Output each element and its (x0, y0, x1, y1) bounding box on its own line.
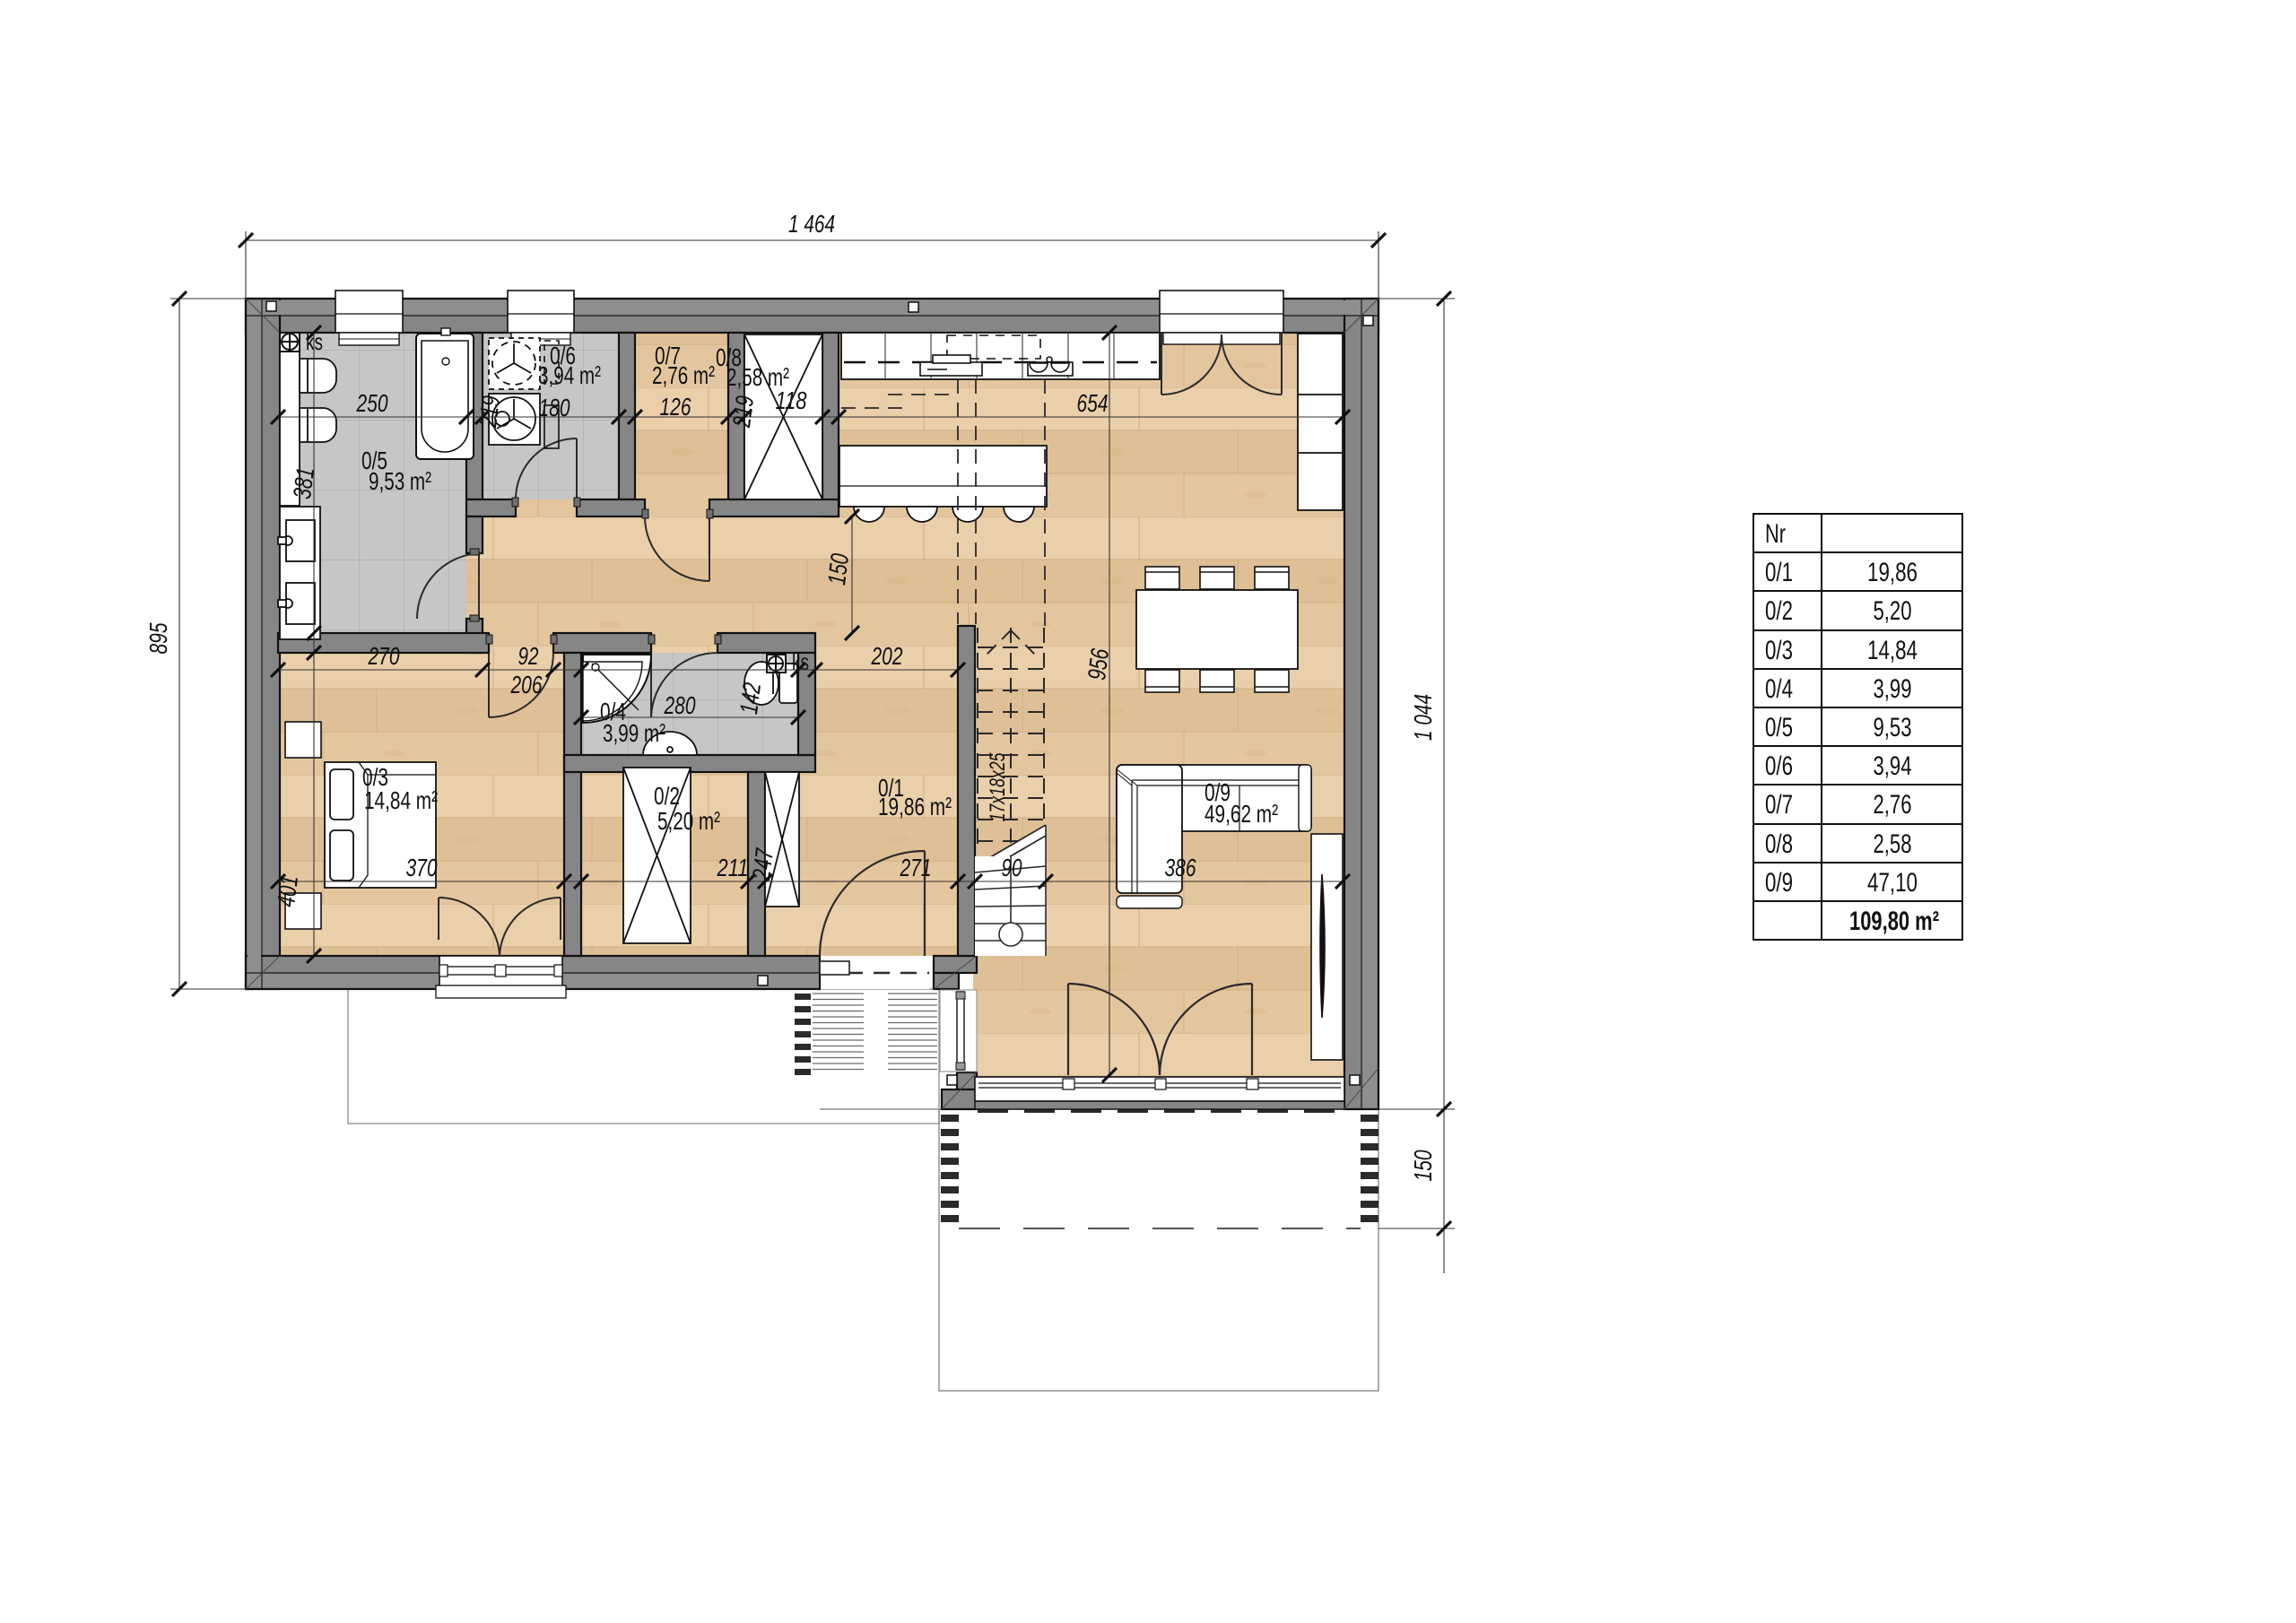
svg-text:180: 180 (539, 394, 570, 421)
svg-text:2,76 m²: 2,76 m² (652, 361, 715, 389)
svg-text:202: 202 (871, 642, 903, 670)
svg-text:386: 386 (1165, 854, 1196, 881)
svg-text:1 464: 1 464 (788, 210, 835, 238)
svg-text:956: 956 (1083, 647, 1114, 681)
svg-text:654: 654 (1077, 389, 1109, 417)
svg-text:370: 370 (406, 854, 438, 881)
svg-text:1 044: 1 044 (1409, 694, 1437, 741)
svg-text:3,94: 3,94 (1874, 751, 1912, 781)
svg-text:126: 126 (660, 393, 691, 421)
svg-text:271: 271 (900, 854, 932, 881)
svg-text:250: 250 (356, 389, 388, 417)
svg-text:211: 211 (717, 854, 749, 881)
svg-text:19,86: 19,86 (1867, 558, 1918, 587)
svg-text:17x18x25: 17x18x25 (986, 752, 1010, 821)
svg-text:401: 401 (272, 874, 303, 909)
svg-text:270: 270 (368, 642, 400, 670)
svg-text:142: 142 (735, 681, 766, 716)
svg-text:0/3: 0/3 (1765, 636, 1793, 665)
svg-text:206: 206 (510, 671, 543, 699)
svg-text:5,20 m²: 5,20 m² (657, 807, 720, 835)
svg-text:280: 280 (664, 691, 696, 719)
svg-text:0/4: 0/4 (1765, 674, 1793, 704)
svg-text:9,53 m²: 9,53 m² (369, 467, 431, 495)
svg-text:0/6: 0/6 (1765, 751, 1793, 781)
svg-text:2,76: 2,76 (1874, 790, 1912, 820)
svg-text:381: 381 (288, 466, 319, 501)
svg-text:2,58 m²: 2,58 m² (726, 363, 789, 391)
svg-text:19,86 m²: 19,86 m² (878, 793, 952, 820)
svg-text:0/2: 0/2 (654, 782, 680, 810)
svg-text:Nr: Nr (1765, 519, 1786, 549)
svg-text:9,53: 9,53 (1874, 713, 1912, 742)
svg-text:0/2: 0/2 (1765, 596, 1793, 626)
svg-text:2,58: 2,58 (1874, 829, 1912, 859)
svg-text:150: 150 (822, 551, 854, 586)
svg-text:247: 247 (747, 846, 778, 882)
svg-text:3,99: 3,99 (1874, 674, 1912, 704)
svg-text:0/1: 0/1 (1765, 558, 1793, 587)
svg-text:895: 895 (144, 622, 172, 654)
svg-text:0/7: 0/7 (1765, 790, 1793, 820)
svg-text:47,10: 47,10 (1867, 868, 1918, 898)
svg-text:14,84: 14,84 (1867, 636, 1918, 665)
svg-text:49,62 m²: 49,62 m² (1205, 800, 1278, 828)
svg-text:0/5: 0/5 (1765, 713, 1793, 742)
svg-text:90: 90 (1002, 854, 1022, 881)
svg-text:0/9: 0/9 (1765, 868, 1793, 898)
svg-text:109,80 m²: 109,80 m² (1849, 907, 1939, 936)
svg-text:150: 150 (1409, 1150, 1437, 1181)
svg-text:5,20: 5,20 (1874, 596, 1912, 626)
svg-text:219: 219 (474, 395, 505, 430)
svg-text:92: 92 (518, 642, 539, 670)
svg-text:3,94 m²: 3,94 m² (538, 361, 601, 389)
svg-text:219: 219 (727, 395, 759, 430)
svg-text:0/8: 0/8 (1765, 829, 1793, 859)
svg-text:ks: ks (792, 648, 809, 675)
svg-text:3,99 m²: 3,99 m² (603, 719, 665, 747)
svg-text:14,84 m²: 14,84 m² (364, 786, 438, 814)
